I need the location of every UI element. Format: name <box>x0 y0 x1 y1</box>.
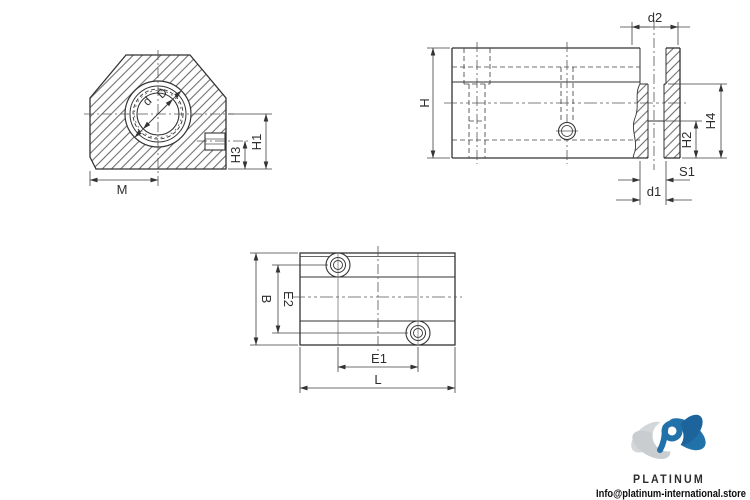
dim-label-e1: E1 <box>371 351 387 366</box>
dim-label-l: L <box>374 372 381 387</box>
dim-label-s1: S1 <box>679 164 695 179</box>
technical-drawing-page: d D H3 H1 M <box>0 0 750 500</box>
dim-label-b: B <box>259 295 274 304</box>
top-view-edges <box>300 257 455 322</box>
dim-label-h: H <box>417 98 432 107</box>
side-view-centerlines <box>444 20 686 170</box>
company-name: PLATINUM <box>633 472 705 486</box>
technical-drawing: d D H3 H1 M <box>0 0 750 500</box>
top-view: B E2 E1 L <box>250 246 462 393</box>
top-view-centerlines <box>292 246 462 352</box>
company-email: Info@platinum-international.store <box>596 488 746 500</box>
company-logo: PLATINUM Info@platinum-international.sto… <box>596 410 746 500</box>
dim-label-m: M <box>117 182 128 197</box>
dim-label-h1: H1 <box>249 134 264 151</box>
dim-label-d1: d1 <box>647 184 661 199</box>
front-view: d D H3 H1 M <box>84 50 272 197</box>
dim-label-e2: E2 <box>281 291 296 307</box>
dim-label-h4: H4 <box>703 113 718 130</box>
grease-fitting-hole <box>205 133 225 150</box>
grease-port <box>556 123 578 140</box>
dim-label-d2: d2 <box>648 10 662 25</box>
platinum-logo-mark <box>626 410 712 465</box>
dim-label-h2: H2 <box>679 132 694 149</box>
dim-label-h3: H3 <box>228 147 243 164</box>
top-view-outline <box>300 253 455 345</box>
side-view: H d2 H4 H2 S1 d1 <box>417 10 727 205</box>
